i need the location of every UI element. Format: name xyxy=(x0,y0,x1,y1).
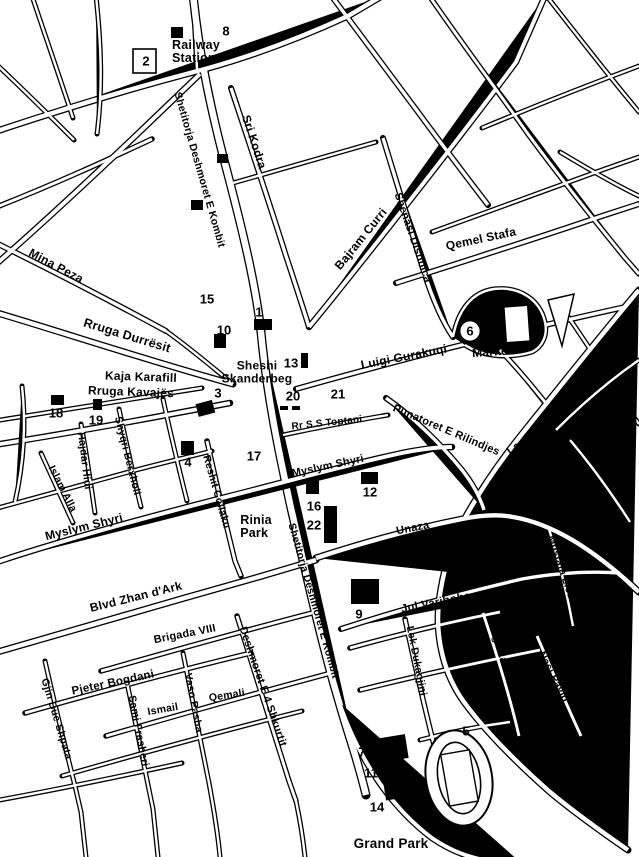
map-canvas: Railway Station Sheshi Skanderbeg Rinia … xyxy=(0,0,639,857)
poi-number-5: 5 xyxy=(462,724,469,739)
marker-20-dash-b xyxy=(292,406,300,410)
poi-number-4: 4 xyxy=(184,455,191,470)
market-hall-outline xyxy=(504,305,530,343)
marker-16 xyxy=(306,481,319,494)
poi-number-7: 7 xyxy=(358,745,365,760)
marker-18 xyxy=(51,395,64,405)
marker-4 xyxy=(181,441,194,455)
poi-number-16: 16 xyxy=(307,499,321,514)
rinia-park-label: Rinia Park xyxy=(240,514,272,540)
street-label-kaja-karafill: Kaja Karafill xyxy=(105,369,177,384)
marker-railway-station xyxy=(171,27,183,38)
poi-number-22: 22 xyxy=(307,518,321,533)
sheshi-skanderbeg-label: Sheshi Skanderbeg xyxy=(222,359,293,384)
market-label: Market xyxy=(472,344,513,359)
marker-20-dash-a xyxy=(280,406,288,410)
poi-number-6: 6 xyxy=(466,324,473,339)
poi-number-21: 21 xyxy=(331,387,345,402)
marker-building-a xyxy=(217,154,228,163)
street-label-rruga-kavajes: Rruga Kavajës xyxy=(88,384,174,400)
poi-number-9: 9 xyxy=(355,607,362,622)
poi-number-8: 8 xyxy=(222,24,229,39)
marker-12 xyxy=(361,472,378,484)
poi-number-2: 2 xyxy=(142,54,149,69)
marker-1 xyxy=(254,319,272,330)
marker-building-b xyxy=(191,200,203,210)
marker-13 xyxy=(301,353,308,368)
poi-number-12: 12 xyxy=(363,485,377,500)
marker-9 xyxy=(351,579,379,604)
poi-number-14: 14 xyxy=(370,800,384,815)
poi-number-1: 1 xyxy=(255,305,262,320)
poi-number-20: 20 xyxy=(286,389,300,404)
marker-3 xyxy=(195,400,215,417)
poi-number-18: 18 xyxy=(49,406,63,421)
poi-number-19: 19 xyxy=(89,413,103,428)
marker-22 xyxy=(324,506,337,543)
marker-19 xyxy=(93,399,102,410)
poi-number-11: 11 xyxy=(364,766,378,781)
poi-number-13: 13 xyxy=(284,356,298,371)
poi-number-3: 3 xyxy=(214,386,221,401)
poi-number-10: 10 xyxy=(217,323,231,338)
poi-number-17: 17 xyxy=(247,449,261,464)
railway-station-label: Railway Station xyxy=(172,39,220,65)
poi-number-15: 15 xyxy=(200,292,214,307)
grand-park-label: Grand Park xyxy=(354,837,429,851)
